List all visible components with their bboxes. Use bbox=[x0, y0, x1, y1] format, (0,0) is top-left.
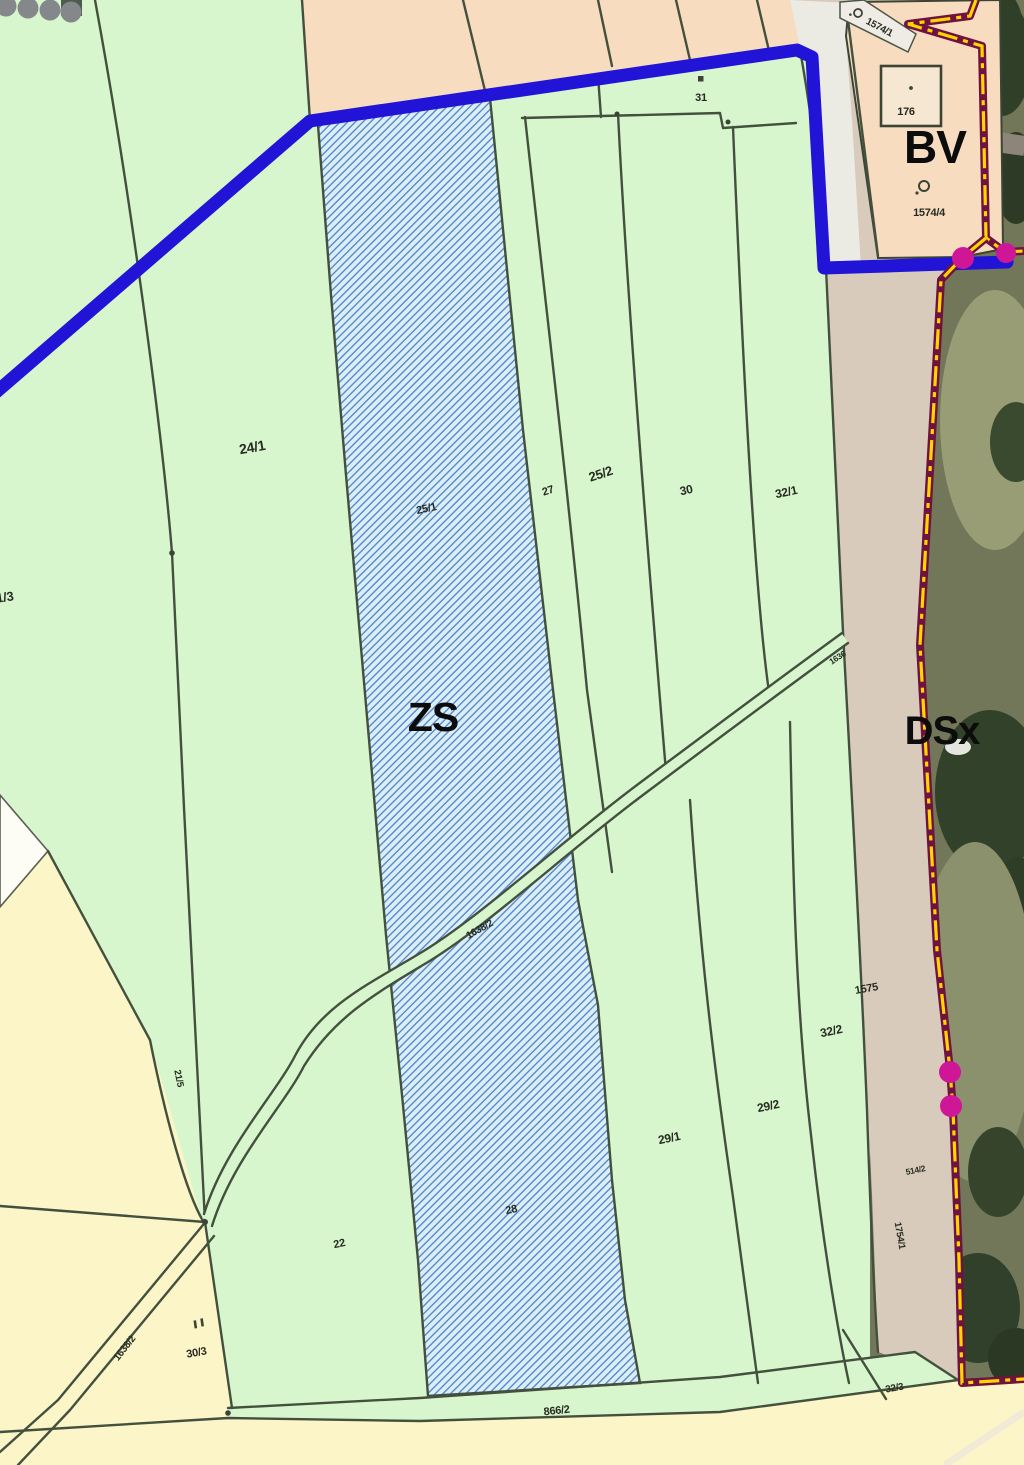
zone-label-zs: ZS bbox=[408, 694, 458, 740]
building-point-symbol bbox=[909, 86, 913, 90]
parcel-31-square-mark bbox=[698, 76, 704, 82]
parcel-label-176: 176 bbox=[897, 106, 915, 118]
parcel-label-1574-4: 1574/4 bbox=[913, 207, 946, 219]
zone-label-dsx: DSx bbox=[905, 709, 981, 753]
zone-label-bv: BV bbox=[904, 121, 967, 173]
parcel-label-31: 31 bbox=[695, 92, 707, 104]
cadastral-zoning-map: 21/3 24/1 25/1 27 25/2 30 31 32/1 176 15… bbox=[0, 0, 1024, 1465]
